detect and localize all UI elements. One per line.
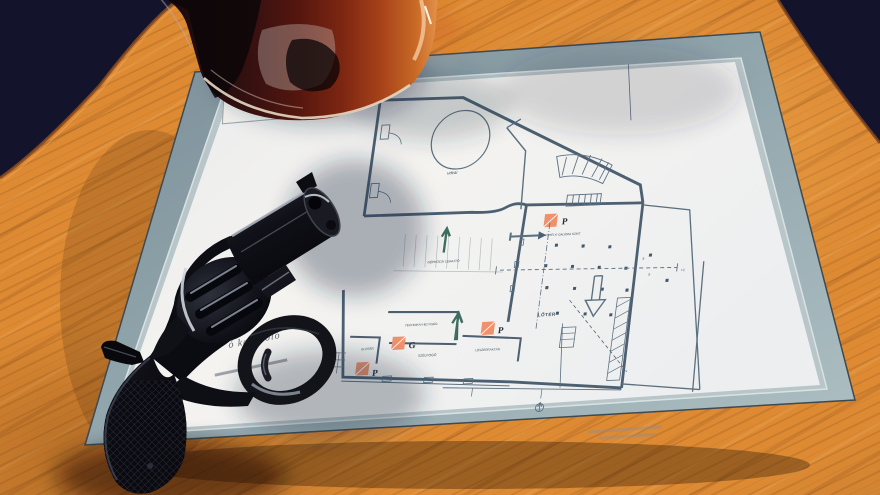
liquor-glass <box>0 0 880 495</box>
photo-scene: GÉPKOCSI LEHAJTÓ udvar P ÓVÓHELYI GALÉRI… <box>0 0 880 495</box>
